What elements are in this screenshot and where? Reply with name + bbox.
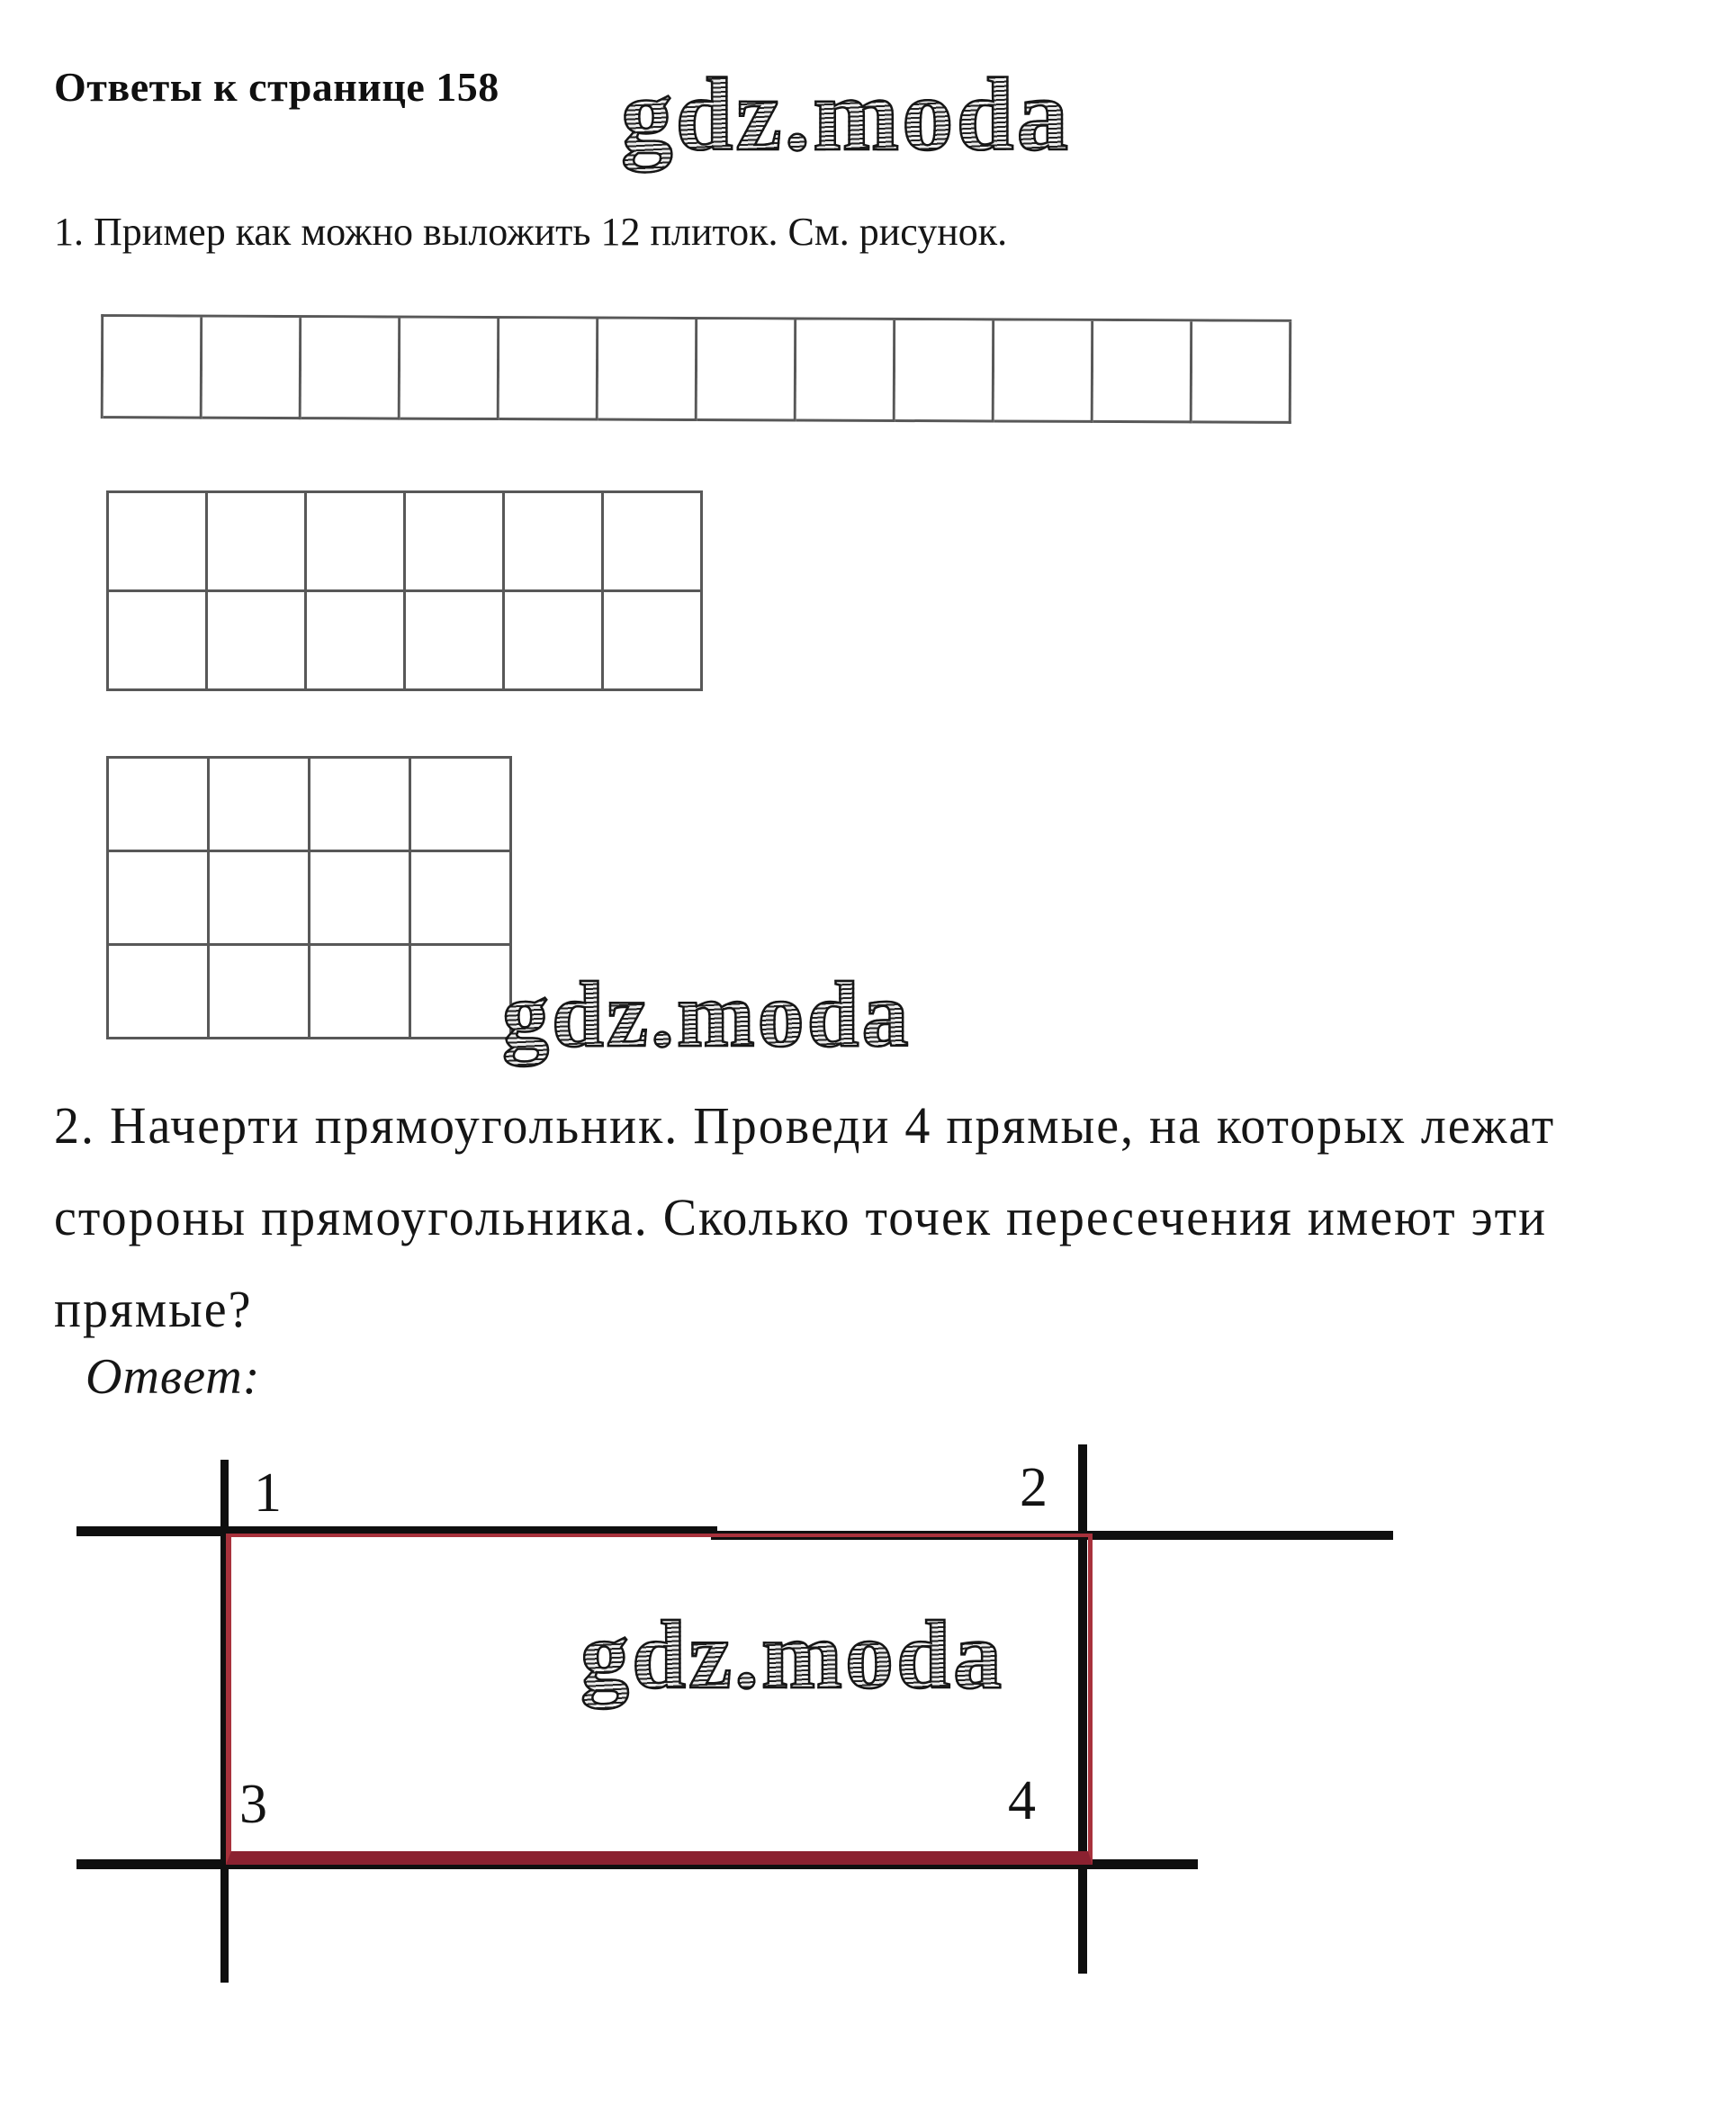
tile-cell bbox=[406, 493, 505, 592]
tile-cell bbox=[103, 317, 202, 418]
tile-cell bbox=[307, 592, 406, 691]
tile-cell bbox=[109, 493, 208, 592]
tile-cell bbox=[411, 852, 512, 946]
intersection-point-label-2: 2 bbox=[1020, 1456, 1048, 1520]
tile-cell bbox=[895, 320, 994, 422]
tile-cell bbox=[499, 319, 598, 420]
tile-cell bbox=[598, 319, 697, 421]
tile-cell bbox=[210, 946, 310, 1039]
tile-cell bbox=[109, 592, 208, 691]
intersection-point-label-1: 1 bbox=[254, 1462, 282, 1525]
tile-grid-2x6 bbox=[106, 490, 703, 691]
task2-text-line-2: стороны прямоугольника. Сколько точек пе… bbox=[54, 1188, 1547, 1248]
tile-cell bbox=[210, 759, 310, 852]
tile-cell bbox=[310, 852, 411, 946]
tile-cell bbox=[406, 592, 505, 691]
tile-cell bbox=[109, 946, 210, 1039]
tile-cell bbox=[994, 320, 1093, 422]
tile-grid-1x12 bbox=[101, 314, 1291, 424]
tile-cell bbox=[411, 946, 512, 1039]
task1-text: 1. Пример как можно выложить 12 плиток. … bbox=[54, 209, 1007, 255]
intersection-point-label-3: 3 bbox=[239, 1773, 267, 1837]
tile-cell bbox=[505, 493, 604, 592]
tile-cell bbox=[109, 852, 210, 946]
tile-cell bbox=[202, 318, 301, 419]
tile-cell bbox=[208, 592, 307, 691]
tile-cell bbox=[307, 493, 406, 592]
tile-cell bbox=[1192, 321, 1291, 423]
tile-cell bbox=[505, 592, 604, 691]
task2-text-line-1: 2. Начерти прямоугольник. Проведи 4 прям… bbox=[54, 1096, 1555, 1156]
gdz-moda-watermark-top: gdz.moda bbox=[621, 56, 1071, 175]
intersection-point-label-4: 4 bbox=[1008, 1769, 1036, 1833]
tile-cell bbox=[400, 319, 499, 420]
tile-cell bbox=[604, 592, 703, 691]
tile-cell bbox=[210, 852, 310, 946]
tile-cell bbox=[796, 319, 895, 421]
scanned-answers-page: Ответы к странице 158 gdz.moda 1. Пример… bbox=[0, 0, 1736, 2105]
gdz-moda-watermark-figure: gdz.moda bbox=[580, 1600, 1004, 1712]
tile-cell bbox=[208, 493, 307, 592]
tile-cell bbox=[604, 493, 703, 592]
tile-cell bbox=[310, 946, 411, 1039]
task2-text-line-3: прямые? bbox=[54, 1280, 253, 1340]
gdz-moda-watermark-middle: gdz.moda bbox=[502, 961, 911, 1068]
page-title: Ответы к странице 158 bbox=[54, 63, 499, 111]
tile-cell bbox=[310, 759, 411, 852]
tile-grid-3x4 bbox=[106, 756, 512, 1039]
tile-cell bbox=[109, 759, 210, 852]
tile-cell bbox=[301, 318, 400, 419]
answer-label: Ответ: bbox=[85, 1348, 260, 1406]
tile-cell bbox=[697, 319, 796, 421]
tile-cell bbox=[1093, 321, 1192, 423]
tile-cell bbox=[411, 759, 512, 852]
